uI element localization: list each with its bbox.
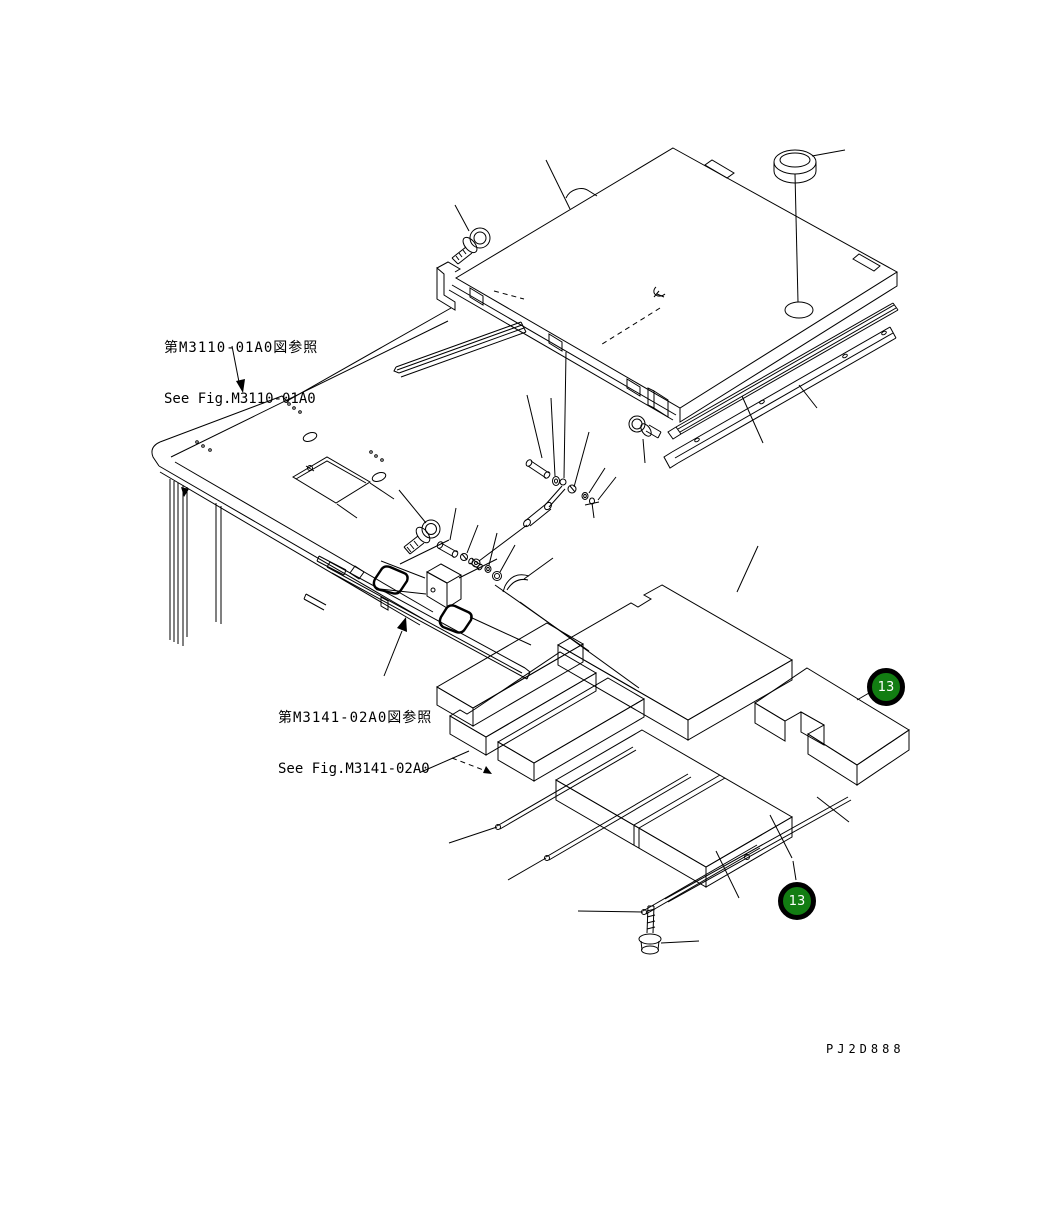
leader-line [551,398,555,476]
leader-line [449,827,497,843]
part-callout-13-right[interactable]: 13 [867,668,905,706]
leader-line [500,545,515,572]
rubber-pad [440,605,472,632]
flange-bolt-middle [399,490,440,554]
clip-fastener [654,287,665,297]
leader-line [643,439,645,463]
cap-plug [774,150,845,318]
floor-mat-panels [421,546,909,887]
leader-line-to-callout [793,861,796,880]
leader-line [546,160,570,209]
leader-line [817,797,849,822]
leader-line [716,851,739,898]
support-rail-with-pads [304,540,639,688]
leader-line [589,468,605,493]
cover-tab [705,160,734,178]
flange-bolt-top-left [452,205,490,264]
gas-spring-damper [472,352,566,567]
leader-line [400,540,449,564]
leader-line [857,693,869,700]
rail-tab [381,597,388,610]
parts-diagram-page: 第M3110-01A0図参照 See Fig.M3110-01A0 第M3141… [0,0,1061,1210]
callout-number: 13 [878,680,895,695]
curved-clip [503,558,553,592]
callout-number: 13 [789,894,806,909]
pins-washers-clips-upper [525,395,616,518]
exploded-view-line-art [0,0,1061,1210]
leader-line [450,508,456,540]
side-rails [664,303,898,468]
hatch-cutout [293,457,394,518]
leader-line [470,617,531,645]
figure-reference-en: See Fig.M3141-02A0 [278,761,432,778]
leader-line [508,858,546,880]
figure-reference-m3141: 第M3141-02A0図参照 See Fig.M3141-02A0 [278,676,432,795]
cover-tab [853,254,880,271]
fig-ref-arrow-2 [384,617,407,676]
cover-hole [785,302,813,318]
part-callout-13-bottom[interactable]: 13 [778,882,816,920]
leader-line [399,490,426,523]
hinge-channel-bracket [437,262,460,310]
seal-strip [394,322,526,377]
leader-line [812,150,845,156]
weld-stud-bolt [639,906,699,954]
deck-legs [170,479,221,646]
leader-line [527,395,542,458]
leader-line [598,477,616,500]
leader-line [381,561,425,578]
leader-line [524,558,553,579]
leader-line [467,525,478,553]
leader-line [770,815,792,858]
drawing-code: PJ2D888 [826,1042,905,1056]
leader-line [795,174,798,302]
leader-line [455,205,469,231]
leader-line [661,941,699,943]
figure-reference-jp: 第M3141-02A0図参照 [278,710,432,727]
figure-reference-m3110: 第M3110-01A0図参照 See Fig.M3110-01A0 [164,306,318,425]
leader-line [737,546,758,592]
figure-reference-en: See Fig.M3110-01A0 [164,391,318,408]
leader-line [574,432,589,487]
figure-reference-jp: 第M3110-01A0図参照 [164,340,318,357]
hood-cover-panel [437,148,897,422]
leader-line [578,911,643,912]
leader-line [520,602,639,688]
flange-bolt-rail [629,416,661,463]
